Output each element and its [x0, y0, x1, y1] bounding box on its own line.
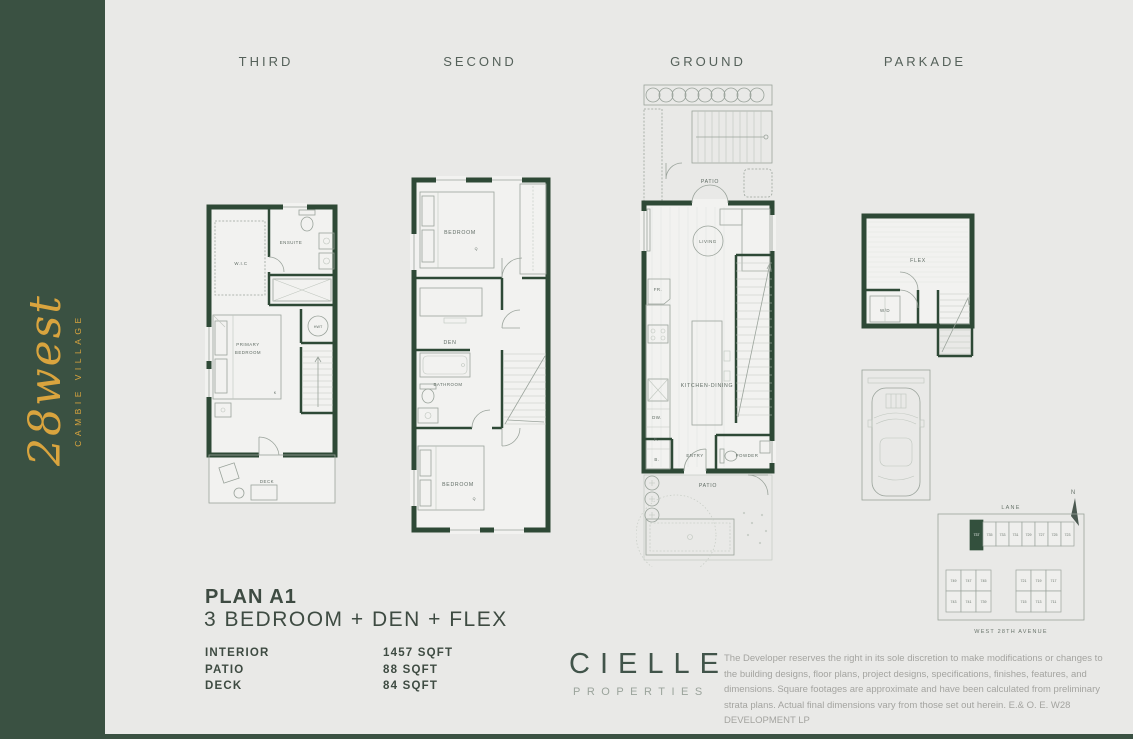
car-icon: [868, 388, 924, 496]
room-label-hwt: HWT: [314, 325, 323, 329]
cielle-logo: CIELLE: [569, 648, 729, 681]
tree-icon: [636, 495, 716, 567]
sidebar: 28west CAMBIE VILLAGE: [0, 0, 105, 739]
parking-stall: [862, 370, 930, 500]
floor-label-parkade: PARKADE: [860, 54, 990, 69]
gate-door-arc: [666, 163, 682, 179]
area-row-patio: PATIO 88 SQFT: [205, 664, 465, 681]
room-label-pantry: P.: [654, 437, 659, 442]
room-label-wd: W/D: [880, 308, 890, 313]
room-label-flex: FLEX: [910, 258, 926, 264]
unit-number: 731: [1013, 533, 1019, 537]
room-label-bedroom-bottom: BEDROOM: [442, 482, 474, 488]
third-floor-plan: ENSUITE W.I.C HWT PRIMARY BEDROOM K DECK: [203, 197, 341, 509]
unit-number: 723: [1065, 533, 1071, 537]
area-label: PATIO: [205, 664, 244, 676]
hedge-row-icon: [644, 85, 772, 105]
unit-number: 727: [1039, 533, 1045, 537]
room-label-primary-2: BEDROOM: [235, 350, 261, 355]
cielle-properties-label: PROPERTIES: [573, 686, 709, 698]
area-label: DECK: [205, 680, 242, 692]
wheel-stop-icon: [868, 378, 924, 383]
logo-cambie-village: CAMBIE VILLAGE: [73, 313, 83, 446]
unit-number: 739: [981, 600, 987, 604]
room-label-closet: B.: [654, 457, 659, 462]
room-label-entry: ENTRY: [686, 453, 703, 458]
unit-number: 721: [1021, 579, 1027, 583]
unit-number: 737: [974, 533, 980, 537]
gate-door-arc: [748, 475, 768, 495]
plan-title: PLAN A1: [205, 586, 297, 609]
area-row-interior: INTERIOR 1457 SQFT: [205, 647, 465, 664]
sitemap-right-block: 721 719 717 715 713 711: [1016, 570, 1061, 612]
room-label-bathroom: BATHROOM: [433, 382, 462, 387]
exterior-stairs: [692, 111, 772, 163]
unit-number: 735: [987, 533, 993, 537]
floor-label-ground: GROUND: [643, 54, 773, 69]
hedge-box-icon: [744, 169, 772, 197]
area-row-deck: DECK 84 SQFT: [205, 680, 465, 697]
unit-number: 725: [1052, 533, 1058, 537]
floor-label-third: THIRD: [201, 54, 331, 69]
unit-number: 717: [1051, 579, 1057, 583]
sitemap-left-block: 749 747 745 743 741 739: [946, 570, 991, 612]
room-label-patio-lower: PATIO: [699, 483, 717, 489]
floor-label-second: SECOND: [415, 54, 545, 69]
plan-subtitle: 3 BEDROOM + DEN + FLEX: [204, 608, 508, 632]
street-label: WEST 28TH AVENUE: [974, 629, 1047, 635]
sitemap-top-row: 737 735 733 731 729 727 725 723: [970, 520, 1074, 550]
unit-number: 745: [981, 579, 987, 583]
room-label-fridge: FR.: [654, 287, 663, 292]
unit-number: 743: [951, 600, 957, 604]
unit-number: 741: [966, 600, 972, 604]
room-label-deck: DECK: [260, 479, 274, 484]
room-label-wic: W.I.C: [234, 261, 247, 266]
room-label-den: DEN: [443, 340, 456, 346]
legal-disclaimer: The Developer reserves the right in its …: [724, 651, 1118, 729]
planter-icon: [646, 519, 734, 555]
bottom-accent-bar: [0, 734, 1133, 739]
area-label: INTERIOR: [205, 647, 270, 659]
lane-label: LANE: [1001, 505, 1020, 511]
unit-number: 715: [1021, 600, 1027, 604]
room-label-primary-1: PRIMARY: [236, 342, 259, 347]
room-label-dishwasher: DW.: [652, 415, 662, 420]
unit-number: 733: [1000, 533, 1006, 537]
room-label-powder: POWDER: [736, 453, 759, 458]
room-label-kitchen-dining: KITCHEN-DINING: [681, 383, 733, 389]
unit-number: 719: [1036, 579, 1042, 583]
area-value: 1457 SQFT: [383, 647, 453, 659]
bed-size-label: Q: [475, 247, 478, 251]
bed-size-label: Q: [473, 497, 476, 501]
area-value: 88 SQFT: [383, 664, 438, 676]
north-label: N: [1071, 490, 1075, 496]
logo-28west: 28west: [24, 294, 68, 466]
unit-number: 747: [966, 579, 972, 583]
unit-number: 711: [1051, 600, 1057, 604]
room-label-patio-upper: PATIO: [701, 179, 719, 185]
unit-number: 729: [1026, 533, 1032, 537]
parkade-plan: FLEX W/D: [860, 208, 978, 503]
area-table: INTERIOR 1457 SQFT PATIO 88 SQFT DECK 84…: [205, 647, 465, 697]
room-label-ensuite: ENSUITE: [280, 240, 303, 245]
second-floor-plan: BEDROOM Q DEN BATHROOM BEDROOM Q: [406, 170, 556, 540]
room-label-bedroom-top: BEDROOM: [444, 230, 476, 236]
room-label-living: LIVING: [699, 239, 716, 244]
area-value: 84 SQFT: [383, 680, 438, 692]
ground-floor-plan: PATIO LIVING FR. KITCHEN-DINING DW. P. B…: [636, 83, 780, 567]
unit-number: 749: [951, 579, 957, 583]
brand-logo: 28west CAMBIE VILLAGE: [8, 270, 98, 490]
unit-number: 713: [1036, 600, 1042, 604]
site-map: N LANE 737 735 733 731 729 727 725 723 7…: [926, 484, 1092, 636]
